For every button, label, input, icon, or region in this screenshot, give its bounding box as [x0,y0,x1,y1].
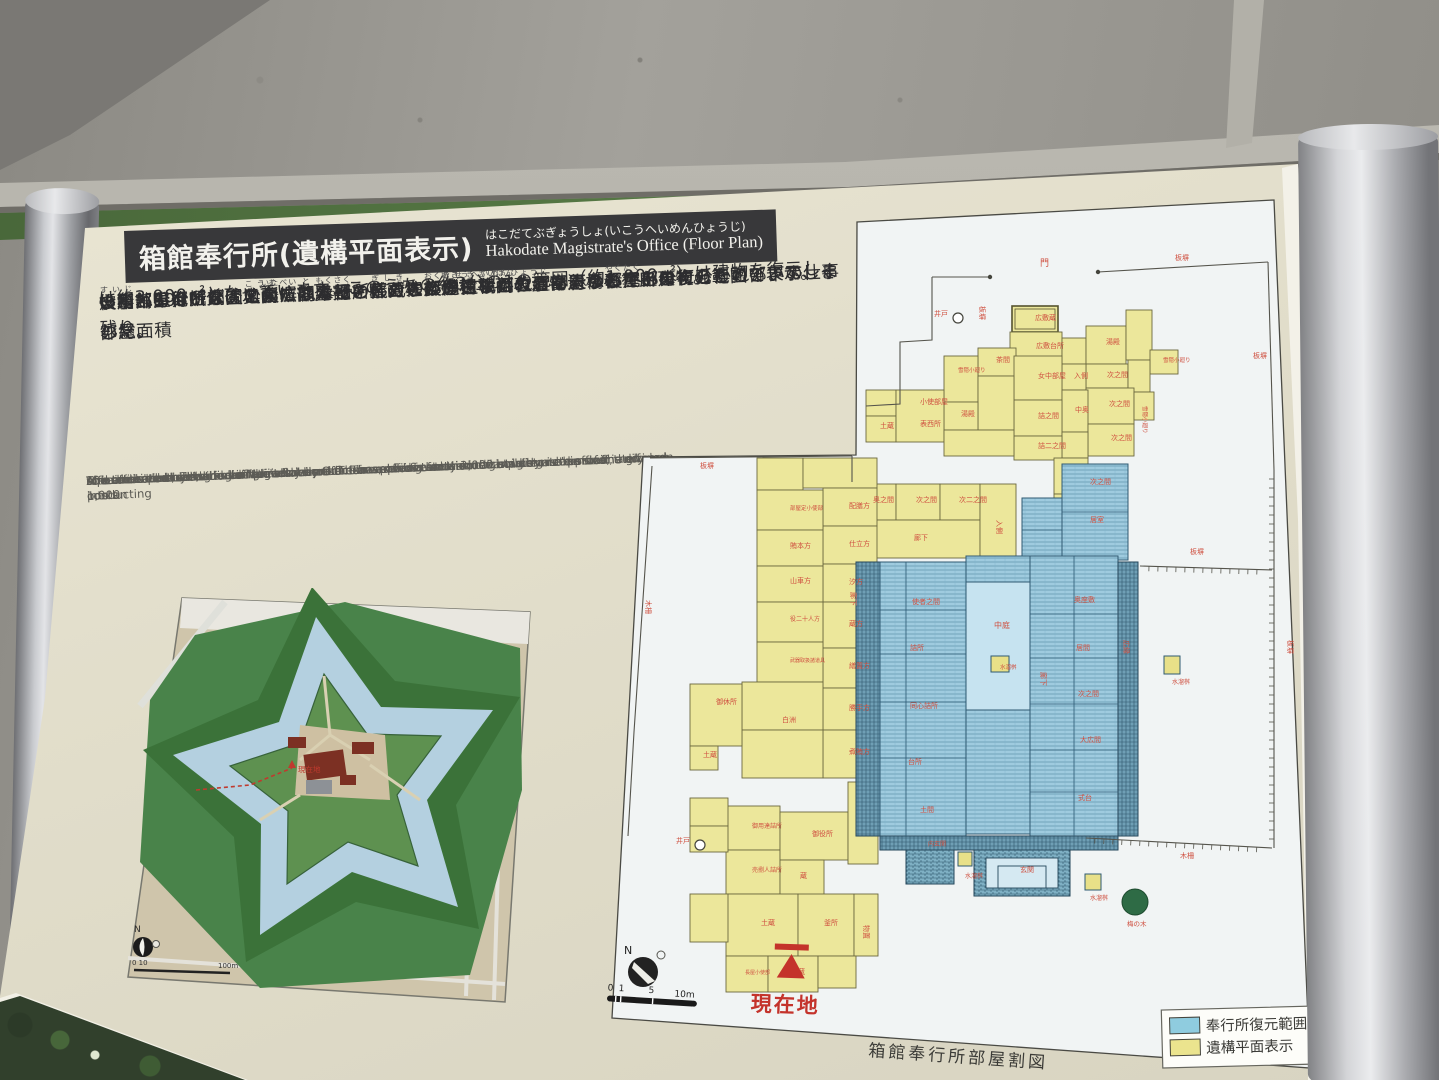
legend-swatch-restored [1170,1017,1200,1034]
plan-room-label: 女中部屋 [1038,371,1066,380]
plan-room-label: 木柵 [1180,851,1194,860]
plan-scale-0: 0 [607,983,614,993]
plan-room-label: 土間 [920,805,934,814]
magistrate-office-floor-plan: 梅の木門井戸井戸板塀木柵板塀板塀板塀板塀板塀木柵広敷蔵広敷台所湯殿入側次之間次之… [588,190,1336,1080]
plan-room-label: 山車方 [790,576,811,585]
plan-room-label: 次之間 [1078,689,1099,698]
plan-room-label: 井戸 [676,836,690,845]
plan-room-label: 表西所 [920,419,941,428]
plan-room [966,582,1030,710]
plan-room-label: 広敷台所 [1036,341,1064,350]
plan-room-label: 入側 [1074,371,1088,380]
fort-scale-left: 0 10 [132,959,148,967]
plan-room-label: 次之間 [916,495,937,504]
plan-room-label: 長屋小使部 [745,969,770,976]
plan-room [757,458,803,490]
plan-room-label: 部屋定小使部 [790,504,824,512]
plan-room-label: 御用達詰所 [752,822,782,830]
plan-room-label: 湯殿 [1106,337,1120,346]
plan-room [856,562,880,836]
plan-room-label: 土蔵 [703,750,717,759]
plan-room-label: 板塀 [978,306,987,320]
fence-end-dot [988,275,992,279]
plan-room [1126,310,1152,360]
plan-room-label: 井戸 [934,309,948,318]
right-metal-post [1298,127,1439,1080]
plan-room-label: 木柵 [644,600,653,614]
plan-room-label: 次之間 [1109,399,1130,408]
plan-legend: 奉行所復元範囲 遺構平面表示 [1161,1006,1320,1068]
plan-room-label: 詰之間 [1038,411,1059,420]
plan-room [880,836,1118,850]
plan-scale-1: 1 [618,984,624,994]
plan-room-label: 中奥 [1075,405,1089,414]
plan-room-label: 雪隠小廻り [1163,356,1191,364]
plan-room-label: 門 [1040,258,1049,269]
plan-room-label: 中庭 [994,620,1010,630]
plan-room-label: 茶間 [996,355,1010,364]
plan-room-label: 蔵方 [849,619,863,628]
well-icon [953,313,963,323]
plan-room-label: 次二之間 [959,495,987,504]
plan-room-label: 水溜桝 [965,872,983,880]
plan-room-label: 広敷蔵 [1035,313,1056,322]
plan-room [944,356,978,402]
plan-room [866,390,896,416]
plan-room [690,684,742,746]
plan-room-label: 玄関 [1020,865,1034,874]
plan-room-label: 廊下 [914,533,928,542]
plan-room-label: 湯殿 [961,409,975,418]
plan-room-label: 勝手方 [849,703,870,712]
plan-room-label: 土蔵 [880,421,894,430]
plan-room-label: 御役所 [812,829,833,838]
plan-room-label: 雪隠小廻り [958,366,986,374]
plan-room-label: 板塀 [700,461,714,470]
plan-room [803,458,877,488]
plan-room [1118,562,1138,836]
legend-swatch-remains [1170,1039,1200,1056]
fort-scale-right: 100m [218,962,238,970]
plan-room-label: 役二十人方 [790,615,820,623]
plan-room-label: 同心詰所 [910,701,938,710]
plan-scale-10m: 10m [674,989,695,1000]
plan-room [906,850,954,884]
current-location-label: 現在地 [750,992,820,1018]
plan-room-label: 水溜桝 [1090,894,1108,902]
goryokaku-fort-map: 現在地 N 0 10 100m [118,588,542,1012]
plan-room [966,710,1030,834]
plan-room-label: 配膳方 [849,501,870,510]
plan-scale-5: 5 [648,986,654,996]
plan-room-label: 仕立方 [849,539,870,548]
plan-room-label: 内玄関 [928,840,946,848]
plan-room [944,430,1014,456]
plan-room-label: 煮賄方 [849,747,870,756]
plan-room-label: 蔵 [800,871,807,880]
plan-north-label: N [624,944,632,957]
plan-room [978,376,1014,430]
plan-room [1128,360,1150,392]
plan-room-label: 入側 [995,520,1004,534]
plan-room-label: 奥座敷 [1074,595,1095,604]
plan-room-label: 板塀 [1286,640,1295,654]
plan-room-label: 釜所 [824,918,838,927]
plan-room-label: 詰二之間 [1038,441,1066,450]
plan-room-label: 詰所 [910,643,924,652]
plan-room-label: 台所 [908,757,922,766]
plan-room-label: 次之間 [1090,477,1111,486]
plan-room-label: 武器取扱諸道具 [790,657,825,664]
plan-room-label: 小使部屋 [920,397,948,406]
plan-room-label: 廊下 [849,592,858,606]
plan-room-label: 賄本方 [790,541,811,550]
plan-room-label: 繕置方 [849,661,870,670]
plum-tree-icon [1122,889,1148,915]
plan-room-label: 奥之間 [873,495,894,504]
plan-room-label: 板塀 [1175,253,1189,262]
plan-room-label: 次之間 [1107,370,1128,379]
well-icon [695,840,705,850]
plan-room-label: 汐方 [849,577,863,586]
right-post-cap [1298,123,1438,150]
plan-room [690,894,728,942]
left-post-cap [25,187,100,215]
fort-gray-building [306,780,332,794]
plan-room [958,852,972,866]
plan-room-label: 廊下 [1039,672,1048,686]
plan-room-label: 居間 [1076,644,1090,652]
plan-room-label: 式台 [1078,793,1092,802]
plan-room-label: 御休所 [716,697,737,706]
plum-tree-label: 梅の木 [1127,919,1147,928]
plan-room [818,956,856,988]
plan-room-label: 板塀 [1253,351,1267,360]
plan-room-label: 広縁 [1122,640,1131,654]
plan-room [1164,656,1180,674]
plan-room-label: 雪隠小廻り [1141,406,1149,434]
fort-building [352,742,374,754]
plan-room-label: 大広間 [1080,735,1101,744]
plan-room-label: 次之間 [1111,433,1132,442]
plan-room-label: 水溜桝 [1172,678,1190,686]
legend-label-remains: 遺構平面表示 [1206,1038,1293,1057]
plan-room [742,730,823,778]
fort-building [340,775,356,785]
plan-room-label: 白洲 [782,715,796,724]
plan-room-label: 板塀 [1190,547,1204,556]
plan-room-label: 物置 [862,925,871,939]
plan-room [1062,338,1086,364]
fort-north-label: N [134,925,141,935]
plan-room [966,556,1030,582]
plan-room [1085,874,1101,890]
plan-room-label: 水溜桝 [1000,663,1017,671]
sign-title-japanese: 箱館奉行所(遺構平面表示) [138,226,474,276]
fort-compass-ring [153,941,160,948]
plan-room-label: 売捌人詰所 [752,866,782,874]
fort-building [288,737,306,748]
plan-room-label: 居室 [1090,515,1104,524]
fence-end-dot [1096,270,1100,274]
plan-room [690,798,728,826]
plan-room-label: 土蔵 [761,918,775,927]
plan-room-label: 使者之間 [912,597,940,606]
photo-of-information-signboard: 箱館奉行所(遺構平面表示) はこだてぶぎょうしょ(いこうへいめんひょうじ) Ha… [0,0,1439,1080]
fort-current-location-label: 現在地 [298,764,321,774]
